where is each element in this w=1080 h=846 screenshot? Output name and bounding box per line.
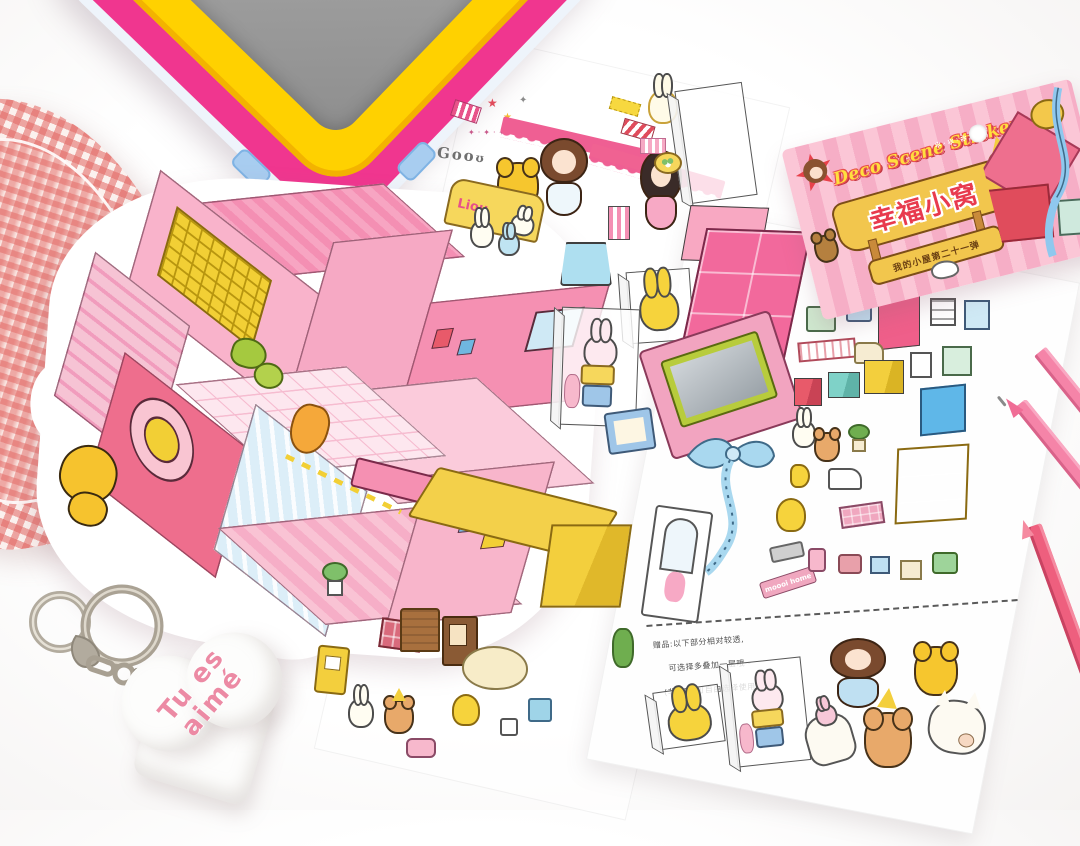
washi-tape-mini xyxy=(640,138,666,154)
sparkle-sticker: ✦ xyxy=(519,95,527,106)
lobster-clasp xyxy=(72,636,99,667)
party-hat xyxy=(877,687,899,709)
star-sticker: ★ xyxy=(487,96,498,110)
yellow-arcade-sticker xyxy=(314,644,351,695)
small-box-sticker xyxy=(900,560,922,580)
vending-window xyxy=(449,624,467,646)
girl-face-icon xyxy=(808,165,824,180)
mini-blue-shelf-sticker xyxy=(964,300,990,330)
small-box-sticker xyxy=(870,556,890,574)
pink-drape xyxy=(564,374,581,409)
party-bear-sticker xyxy=(864,712,912,768)
yellow-bunny-face xyxy=(638,288,681,333)
plant-edge-sticker xyxy=(612,628,634,668)
yellow-wardrobe-sticker xyxy=(895,443,970,524)
teal-cube-sticker xyxy=(828,372,860,398)
radio-sticker xyxy=(838,554,862,574)
bunny-face-box-sticker xyxy=(652,684,725,751)
gift-note-line1: 赠品:以下部分相对较透, xyxy=(653,635,745,650)
cat-paw xyxy=(957,732,975,748)
door-window xyxy=(659,516,700,574)
arcade-screen xyxy=(324,655,341,671)
yellow-bear-sticker xyxy=(914,646,958,696)
plant-pot xyxy=(327,580,343,596)
plant-sticker xyxy=(848,424,870,454)
bunny-sticker-blue xyxy=(498,232,520,256)
green-pad-sticker xyxy=(932,552,958,574)
plant-pot xyxy=(852,439,866,452)
red-cube-sticker xyxy=(794,378,822,406)
blue-box-sticker xyxy=(528,698,552,722)
tv-frame-green xyxy=(660,330,779,428)
tan-bear-party-sticker xyxy=(384,700,414,734)
yellow-bunny-face xyxy=(665,700,714,744)
package-title: 幸福小窝 xyxy=(865,173,983,239)
washer-drum xyxy=(139,407,184,472)
doodle-text: Gooʊ xyxy=(436,143,487,166)
bunny-sticker-cream xyxy=(470,220,494,248)
tv-screen xyxy=(670,340,768,418)
door-character xyxy=(663,571,687,603)
blue-cubby-sticker xyxy=(920,384,966,437)
mini-sofa-sticker xyxy=(406,738,436,758)
bunny-overalls xyxy=(755,726,785,749)
girl-dress xyxy=(837,677,880,708)
girl-face xyxy=(552,150,575,173)
blue-chair-sticker xyxy=(560,242,612,286)
white-bed-sticker xyxy=(828,468,862,490)
bunny-overalls xyxy=(582,384,613,407)
mini-drawers-sticker xyxy=(930,298,956,326)
white-box-sticker xyxy=(910,352,932,378)
girl-dress xyxy=(645,195,677,230)
rose-pen-barrel xyxy=(1027,523,1080,688)
brown-shop-sticker xyxy=(400,608,440,652)
cream-dog-sticker xyxy=(462,646,528,690)
mint-cabinet-sticker xyxy=(942,346,972,376)
brown-bear-icon xyxy=(811,232,841,265)
cat-ear xyxy=(965,691,983,709)
flower-dots xyxy=(660,158,676,168)
picture-frame-sticker xyxy=(603,407,656,455)
tan-bear-sticker xyxy=(814,432,840,462)
wall-poster-red xyxy=(431,328,454,349)
party-hat xyxy=(392,688,406,701)
duck-sticker xyxy=(452,694,480,726)
banana-sticker xyxy=(790,464,810,488)
girl-head-icon xyxy=(801,156,830,185)
doodle-word: Goo xyxy=(436,143,476,165)
duck-builder-sticker xyxy=(776,498,806,532)
phone-sticker xyxy=(808,548,826,572)
dressed-bunny-box-sticker xyxy=(727,656,811,767)
bunny-shirt xyxy=(580,364,615,385)
striped-panel-sticker xyxy=(608,206,630,240)
girl-dress xyxy=(546,182,583,216)
cat-ear xyxy=(935,689,953,707)
potted-plant-sticker xyxy=(322,562,348,600)
washer-arch xyxy=(121,381,202,498)
dice-sticker xyxy=(500,718,518,736)
wall-poster-blue xyxy=(456,339,475,356)
plant-leaves xyxy=(322,562,348,582)
yellow-cube-shelf-sticker xyxy=(864,360,904,394)
doodle-bunny-glyph: ʊ xyxy=(475,151,487,166)
flower-wreath-sticker xyxy=(654,152,682,174)
plant-leaves xyxy=(848,424,870,440)
yellow-cabinet-sticker xyxy=(540,524,632,607)
bunny-sticker-small xyxy=(348,698,374,728)
girl-sticker-white-dress xyxy=(540,138,588,216)
frame-art xyxy=(613,417,646,445)
